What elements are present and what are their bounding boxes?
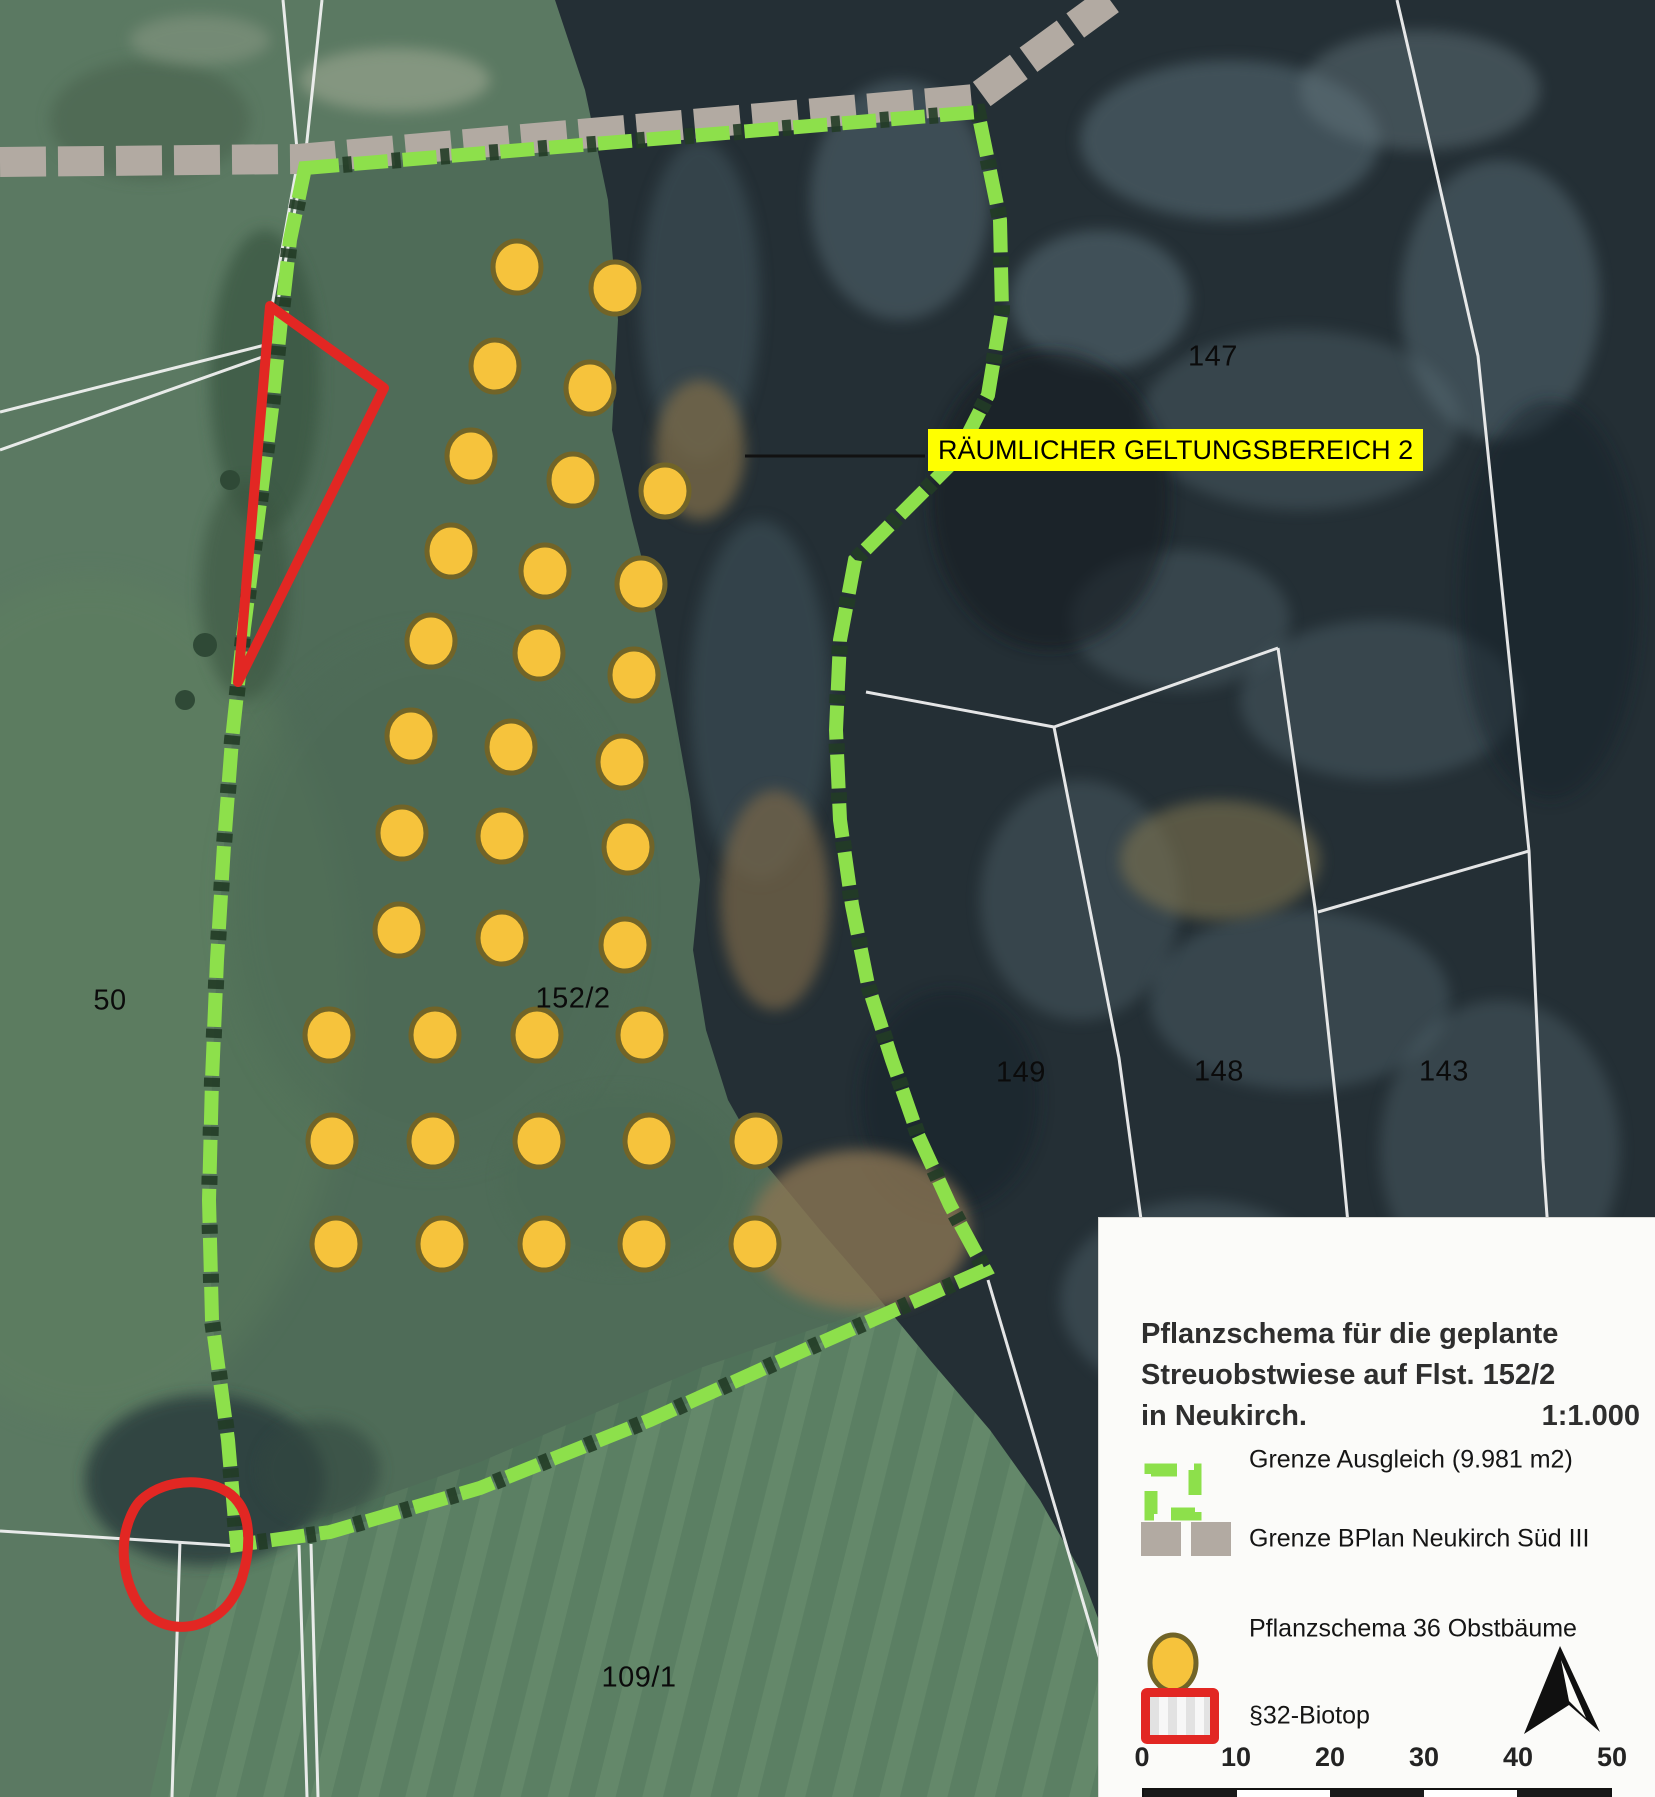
tree-marker [493, 241, 541, 293]
tree-marker [618, 1009, 666, 1061]
legend-panel: Pflanzschema für die geplante Streuobstw… [1098, 1217, 1655, 1797]
scale-bar-segments [1142, 1788, 1612, 1797]
scale-tick-50: 50 [1597, 1742, 1627, 1773]
tree-marker [308, 1115, 356, 1167]
tree-marker [515, 627, 563, 679]
tree-marker [387, 710, 435, 762]
scale-tick-40: 40 [1503, 1742, 1533, 1773]
tree-marker [604, 821, 652, 873]
legend-item-label: Pflanzschema 36 Obstbäume [1249, 1615, 1577, 1644]
tree-marker [407, 615, 455, 667]
parcel-label-143: 143 [1419, 1056, 1469, 1089]
legend-title: Pflanzschema für die geplante Streuobstw… [1141, 1314, 1640, 1437]
grenze-bplan-symbol-icon [1141, 1522, 1231, 1556]
parcel-label-50: 50 [93, 985, 126, 1018]
tree-marker [478, 912, 526, 964]
callout-label: RÄUMLICHER GELTUNGSBEREICH 2 [928, 429, 1423, 471]
tree-marker [610, 649, 658, 701]
parcel-label-109-1: 109/1 [601, 1662, 676, 1695]
tree-marker [409, 1115, 457, 1167]
parcel-label-149: 149 [996, 1057, 1046, 1090]
tree-marker [625, 1115, 673, 1167]
map-canvas: 50152/2147149148143109/1 RÄUMLICHER GELT… [0, 0, 1655, 1797]
tree-marker [601, 919, 649, 971]
map-scale-text: 1:1.000 [1542, 1396, 1640, 1437]
tree-marker [520, 1218, 568, 1270]
tree-marker [471, 340, 519, 392]
scale-tick-10: 10 [1221, 1742, 1251, 1773]
tree-marker [312, 1218, 360, 1270]
scale-bar-segment [1144, 1790, 1237, 1797]
legend-title-line3: in Neukirch. [1141, 1396, 1307, 1437]
tree-marker [591, 262, 639, 314]
parcel-label-152-2: 152/2 [535, 983, 610, 1016]
scale-tick-30: 30 [1409, 1742, 1439, 1773]
tree-marker [515, 1115, 563, 1167]
tree-marker [375, 904, 423, 956]
tree-marker [521, 545, 569, 597]
tree-marker [641, 465, 689, 517]
legend-item-label: Grenze BPlan Neukirch Süd III [1249, 1525, 1589, 1554]
tree-marker [427, 525, 475, 577]
scale-bar-segment [1517, 1790, 1610, 1797]
scale-tick-0: 0 [1134, 1742, 1149, 1773]
tree-marker [411, 1009, 459, 1061]
scale-bar-segment [1424, 1790, 1517, 1797]
tree-marker [732, 1115, 780, 1167]
scale-bar: 01020304050 [1142, 1734, 1612, 1797]
scale-bar-segment [1237, 1790, 1330, 1797]
parcel-label-148: 148 [1194, 1056, 1244, 1089]
legend-title-line2: Streuobstwiese auf Flst. 152/2 [1141, 1355, 1640, 1396]
tree-marker [418, 1218, 466, 1270]
tree-marker [598, 736, 646, 788]
tree-marker [478, 810, 526, 862]
legend-item-label: Grenze Ausgleich (9.981 m2) [1249, 1446, 1573, 1475]
scale-bar-segment [1330, 1790, 1423, 1797]
scale-tick-20: 20 [1315, 1742, 1345, 1773]
tree-marker [305, 1009, 353, 1061]
legend-title-line1: Pflanzschema für die geplante [1141, 1314, 1640, 1355]
parcel-label-147: 147 [1188, 341, 1238, 374]
tree-marker [620, 1218, 668, 1270]
legend-item-label: §32-Biotop [1249, 1702, 1370, 1731]
tree-marker [549, 454, 597, 506]
tree-marker [566, 362, 614, 414]
tree-marker [617, 558, 665, 610]
tree-marker [447, 430, 495, 482]
tree-marker [731, 1218, 779, 1270]
tree-marker [513, 1009, 561, 1061]
tree-marker [378, 807, 426, 859]
tree-marker [487, 721, 535, 773]
